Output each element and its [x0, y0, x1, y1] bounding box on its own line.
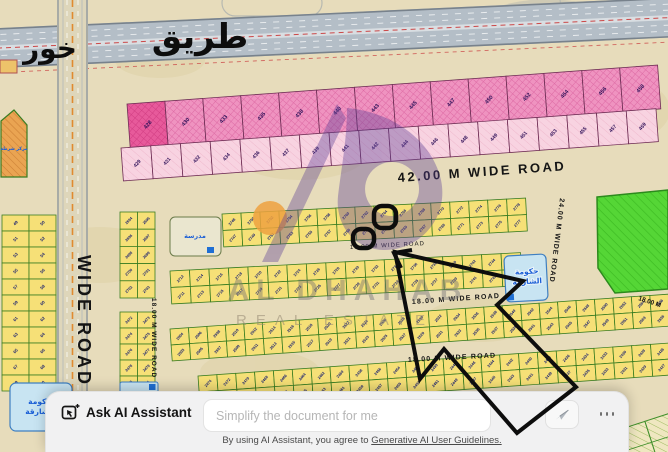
ai-assistant-icon	[61, 403, 81, 423]
plot-map: 4284304334354384404434454474504524544564…	[0, 0, 668, 452]
send-button[interactable]	[545, 400, 579, 429]
ai-prompt-input[interactable]	[203, 399, 491, 432]
government-plot-right: حكومة الشارقة	[504, 254, 548, 302]
svg-text:مدرسة: مدرسة	[184, 232, 206, 240]
property-map-viewer: 4284304334354384404434454474504524544564…	[0, 0, 668, 452]
more-options-button[interactable]	[592, 404, 622, 424]
school-plot: مدرسة	[170, 217, 221, 256]
disclaimer-text: By using AI Assistant, you agree to	[222, 435, 371, 446]
sparkle-icon	[76, 404, 80, 408]
map-pin-icon	[507, 294, 514, 301]
ai-disclaimer: By using AI Assistant, you agree to Gene…	[136, 435, 588, 446]
svg-text:خور: خور	[21, 32, 77, 65]
ai-assistant-bar: Ask AI Assistant By using AI Assistant, …	[45, 391, 629, 452]
guidelines-link[interactable]: Generative AI User Guidelines.	[371, 435, 501, 446]
plot-column-west: 4950515253545556575859606162636465666768…	[2, 215, 56, 391]
plot-column-east-lower: 2472247324742475247624772478247924802481	[120, 312, 155, 392]
svg-text:مركز شرطة: مركز شرطة	[0, 146, 27, 152]
ai-assistant-title: Ask AI Assistant	[86, 405, 192, 420]
svg-text:حكومة: حكومة	[515, 266, 539, 276]
green-park-area	[597, 190, 668, 293]
corner-plot	[0, 60, 17, 73]
svg-text:REAL ESTATE: REAL ESTATE	[236, 312, 434, 329]
plot-column-east-upper: 2694269526962697269826992700270127022703	[120, 212, 155, 298]
send-icon	[554, 408, 570, 422]
svg-text:طريق: طريق	[152, 17, 249, 57]
map-pin-icon	[207, 247, 214, 253]
svg-text:WIDE ROAD: WIDE ROAD	[74, 255, 94, 387]
svg-text:18.00 M WIDE ROAD: 18.00 M WIDE ROAD	[150, 298, 157, 378]
svg-text:الشارقة: الشارقة	[512, 276, 542, 287]
map-document[interactable]: 4284304334354384404434454474504524544564…	[0, 0, 668, 452]
svg-text:AL DHAHAB: AL DHAHAB	[228, 274, 469, 307]
map-pin-icon	[149, 384, 156, 390]
